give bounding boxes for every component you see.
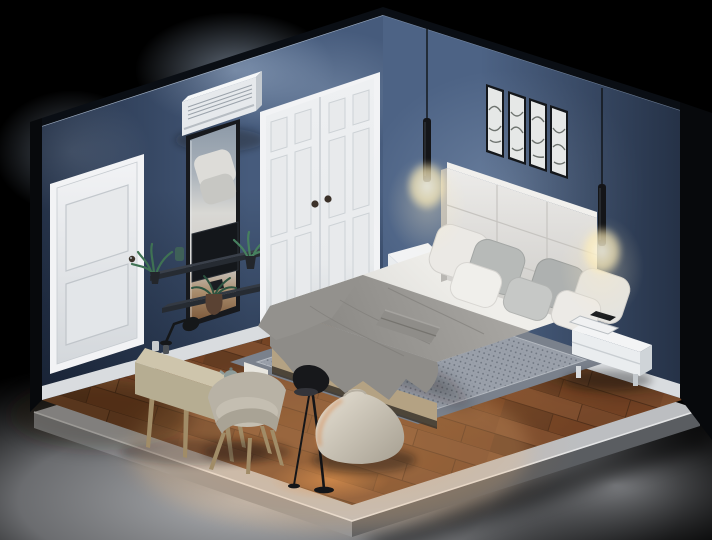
ac-side — [256, 71, 262, 111]
desk-cup-1 — [152, 341, 159, 351]
lamp-shade-opening — [294, 388, 318, 396]
desk-lamp-base — [160, 340, 172, 345]
desk-cup-2 — [163, 345, 169, 354]
lamp-foot-1 — [314, 487, 334, 494]
bedroom-render — [0, 0, 712, 540]
pendant-right-glow — [580, 225, 624, 277]
glass-vase — [175, 247, 184, 261]
closet-knob-right — [324, 195, 331, 202]
bedside-leg-1 — [576, 366, 581, 378]
lamp-foot-2 — [288, 484, 300, 489]
door-knob — [129, 256, 135, 262]
closet-knob-left — [311, 200, 318, 207]
scene-canvas — [0, 0, 712, 540]
pendant-left-glow — [405, 160, 449, 212]
bedside-leg-2 — [633, 374, 638, 386]
entry-door — [50, 154, 144, 374]
art-frame-2 — [508, 91, 526, 165]
door-knob-highlight — [130, 257, 132, 259]
barrel-chair — [203, 372, 291, 474]
left-wall-outer-edge — [30, 118, 42, 412]
art-frame-3 — [529, 98, 547, 172]
art-frame-1 — [486, 84, 504, 158]
art-frame-4 — [550, 105, 568, 179]
right-wall-outer-edge — [680, 102, 712, 440]
